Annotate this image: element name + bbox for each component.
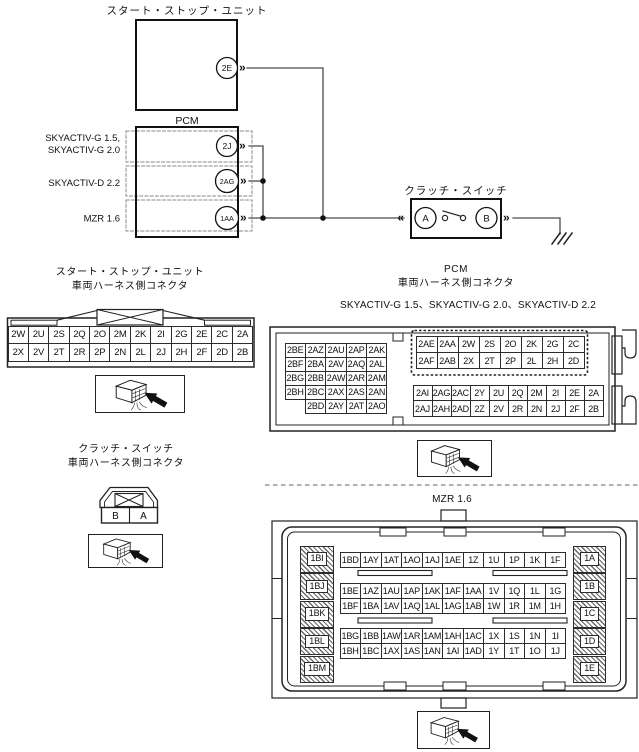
hatch-pin-label: 1B — [580, 580, 599, 594]
pin-1T: 1T — [504, 643, 526, 659]
pin-1AK: 1AK — [422, 583, 444, 599]
hatch-pin-label: 1D — [580, 635, 599, 649]
pin-2AH: 2AH — [432, 400, 452, 417]
pin-2G: 2G — [542, 336, 564, 353]
mzr-left-end-column: 1BI1BJ1BK1BL1BM — [300, 546, 334, 683]
pin-2R: 2R — [69, 343, 90, 362]
pin-row: 2BG2BB2AW2AR2AM — [285, 371, 388, 386]
start-stop-unit-title: スタート・ストップ・ユニット — [107, 5, 268, 17]
pin-1AF: 1AF — [442, 583, 464, 599]
pin-1K: 1K — [524, 552, 546, 568]
pin-2I: 2I — [546, 385, 566, 402]
pin-2I: 2I — [150, 326, 171, 345]
pin-2V: 2V — [28, 343, 49, 362]
pin-1AA: 1AA — [463, 583, 485, 599]
pin-1AJ: 1AJ — [422, 552, 444, 568]
hatch-pin-label: 1BJ — [306, 580, 329, 594]
pin-1AR: 1AR — [401, 628, 423, 644]
pin-1AL: 1AL — [422, 598, 444, 614]
hatch-pin-1BI: 1BI — [300, 546, 334, 573]
pin-1G: 1G — [545, 583, 567, 599]
pin-2AP: 2AP — [346, 343, 367, 358]
pin-2AU: 2AU — [325, 343, 346, 358]
pin-1BA: 1BA — [360, 598, 382, 614]
pin-row: 2AE2AA2W2S2O2K2G2C — [416, 336, 585, 353]
clutch-out-chevron: » — [503, 211, 510, 225]
ground-icon — [552, 233, 572, 244]
pin-1AE: 1AE — [442, 552, 464, 568]
svg-text:»: » — [239, 61, 246, 75]
pin-1AG: 1AG — [442, 598, 464, 614]
pin-1AD: 1AD — [463, 643, 485, 659]
pin-1S: 1S — [504, 628, 526, 644]
hatch-pin-1BK: 1BK — [300, 601, 334, 628]
pin-1R: 1R — [504, 598, 526, 614]
pin-1M: 1M — [524, 598, 546, 614]
connector-view-icon — [98, 377, 182, 410]
pin-2AE: 2AE — [416, 336, 438, 353]
pin-row: 2BF2BA2AV2AQ2AL — [285, 357, 388, 372]
pin-1BG: 1BG — [340, 628, 362, 644]
pin-1AV: 1AV — [381, 598, 403, 614]
pcm-left-pin-block: 2BE2AZ2AU2AP2AK2BF2BA2AV2AQ2AL2BG2BB2AW2… — [285, 343, 388, 414]
variant-label: SKYACTIV-G 1.5, — [45, 133, 120, 144]
pin-2AV: 2AV — [325, 357, 346, 372]
pin-1J: 1J — [545, 643, 567, 659]
pin-2B: 2B — [232, 343, 253, 362]
pin-2AC: 2AC — [451, 385, 471, 402]
pin-2AO: 2AO — [366, 399, 387, 414]
pin-1U: 1U — [483, 552, 505, 568]
pin-1BB: 1BB — [360, 628, 382, 644]
schematic: スタート・ストップ・ユニット PCM SKYACTIV-G 1.5, SKYAC… — [45, 5, 572, 244]
pin-row: 2BD2AY2AT2AO — [285, 399, 388, 414]
pin-2S: 2S — [479, 336, 501, 353]
pin-2E: 2E — [222, 63, 233, 73]
pin-2V: 2V — [489, 400, 509, 417]
pin-1L: 1L — [524, 583, 546, 599]
pin-1N: 1N — [524, 628, 546, 644]
pin-1I: 1I — [545, 628, 567, 644]
pin-row: 1BD1AY1AT1AO1AJ1AE1Z1U1P1K1F — [340, 552, 567, 568]
pin-2D: 2D — [211, 343, 232, 362]
pin-1AS: 1AS — [401, 643, 423, 659]
svg-text:»: » — [240, 174, 247, 188]
pin-2AQ: 2AQ — [346, 357, 367, 372]
pin-2BC: 2BC — [305, 385, 326, 400]
pin-row: 2BE2AZ2AU2AP2AK — [285, 343, 388, 358]
pin-2W: 2W — [8, 326, 29, 345]
pin-2K: 2K — [130, 326, 151, 345]
pin-2M: 2M — [109, 326, 130, 345]
wiring-diagram-page: スタート・ストップ・ユニット PCM SKYACTIV-G 1.5, SKYAC… — [0, 0, 639, 752]
pin-2Q: 2Q — [508, 385, 528, 402]
pin-2C: 2C — [563, 336, 585, 353]
pin-2AG: 2AG — [220, 177, 235, 186]
pin-1F: 1F — [545, 552, 567, 568]
pin-2A: 2A — [232, 326, 253, 345]
pin-2T: 2T — [48, 343, 69, 362]
pin-1V: 1V — [483, 583, 505, 599]
pin-1Y: 1Y — [483, 643, 505, 659]
pin-2AW: 2AW — [325, 371, 346, 386]
pin-2G: 2G — [171, 326, 192, 345]
pin-2BG: 2BG — [285, 371, 306, 386]
mzr-connector-title: MZR 1.6 — [432, 494, 472, 506]
pin-2P: 2P — [500, 352, 522, 369]
variant-label: SKYACTIV-G 2.0 — [48, 145, 120, 156]
hatch-pin-label: 1BI — [307, 552, 328, 566]
start-stop-pin-grid: 2W2U2S2Q2O2M2K2I2G2E2C2A2X2V2T2R2P2N2L2J… — [8, 326, 254, 362]
pin-2AB: 2AB — [437, 352, 459, 369]
connector-view-icon — [419, 713, 487, 746]
pin-1H: 1H — [545, 598, 567, 614]
pin-2E: 2E — [191, 326, 212, 345]
hatch-pin-1E: 1E — [573, 656, 606, 683]
clutch-pin-b: B — [483, 214, 489, 225]
pin-1AB: 1AB — [463, 598, 485, 614]
pin-2F: 2F — [191, 343, 212, 362]
pin-2A: 2A — [584, 385, 604, 402]
pin-2R: 2R — [508, 400, 528, 417]
pin-2X: 2X — [458, 352, 480, 369]
pin-2BH: 2BH — [285, 385, 306, 400]
pin-2Z: 2Z — [470, 400, 490, 417]
pin-2AM: 2AM — [366, 371, 387, 386]
pin-2AI: 2AI — [413, 385, 433, 402]
pin-2AN: 2AN — [366, 385, 387, 400]
hatch-pin-1B: 1B — [573, 573, 606, 600]
pcm-connector-subtitle: SKYACTIV-G 1.5、SKYACTIV-G 2.0、SKYACTIV-D… — [340, 300, 596, 312]
pin-2AG: 2AG — [432, 385, 452, 402]
pin-2F: 2F — [565, 400, 585, 417]
pin-2O: 2O — [89, 326, 110, 345]
mzr-pin-rows-middle: 1BE1AZ1AU1AP1AK1AF1AA1V1Q1L1G1BF1BA1AV1A… — [340, 583, 567, 614]
pin-2Y: 2Y — [470, 385, 490, 402]
hatch-pin-label: 1E — [580, 662, 599, 676]
pin-2T: 2T — [479, 352, 501, 369]
svg-text:»: » — [239, 139, 246, 153]
wires — [247, 68, 560, 234]
clutch-conn-pin-b: B — [112, 511, 119, 522]
connector-view-icon — [90, 536, 160, 565]
pin-2S: 2S — [48, 326, 69, 345]
svg-text:»: » — [240, 211, 247, 225]
pin-2AA: 2AA — [437, 336, 459, 353]
pin-2D: 2D — [563, 352, 585, 369]
pin-row: 2AF2AB2X2T2P2L2H2D — [416, 352, 585, 369]
pcm-connector-title-1: PCM — [444, 264, 468, 276]
pin-1AU: 1AU — [381, 583, 403, 599]
hatch-pin-label: 1BM — [304, 662, 330, 676]
pin-1O: 1O — [524, 643, 546, 659]
pin-1BC: 1BC — [360, 643, 382, 659]
clutch-switch-title: クラッチ・スイッチ — [404, 185, 508, 197]
pin-2AX: 2AX — [325, 385, 346, 400]
pin-1AN: 1AN — [422, 643, 444, 659]
pin-1AM: 1AM — [422, 628, 444, 644]
pin-2J: 2J — [546, 400, 566, 417]
hatch-pin-label: 1BK — [305, 607, 329, 621]
pin-2BE: 2BE — [285, 343, 306, 358]
pin-1AC: 1AC — [463, 628, 485, 644]
pin-row: 1BF1BA1AV1AQ1AL1AG1AB1W1R1M1H — [340, 598, 567, 614]
pin-2AZ: 2AZ — [305, 343, 326, 358]
hatch-pin-1BM: 1BM — [300, 656, 334, 683]
hatch-pin-label: 1BL — [305, 635, 328, 649]
pcm-variant-labels: SKYACTIV-G 1.5, SKYACTIV-G 2.0 SKYACTIV-… — [45, 133, 120, 225]
pin-1Z: 1Z — [463, 552, 485, 568]
pin-2AF: 2AF — [416, 352, 438, 369]
pin-1AA: 1AA — [220, 214, 234, 223]
pin-2U: 2U — [489, 385, 509, 402]
mzr-connector-view-box — [417, 711, 490, 749]
pcm-right-bottom-pin-block: 2AI2AG2AC2Y2U2Q2M2I2E2A2AJ2AH2AD2Z2V2R2N… — [413, 385, 604, 418]
junction-dots — [260, 178, 326, 221]
pin-2BA: 2BA — [305, 357, 326, 372]
pin-2J: 2J — [150, 343, 171, 362]
clutch-connector-shell: B A — [100, 488, 158, 524]
pin-1AY: 1AY — [360, 552, 382, 568]
pin-2BB: 2BB — [305, 371, 326, 386]
ss-connector-view-box — [95, 375, 185, 413]
pin-2J: 2J — [223, 141, 232, 151]
pin-2M: 2M — [527, 385, 547, 402]
connector-view-icon — [419, 442, 489, 474]
clutch-in-chevron: « — [397, 211, 404, 225]
hatch-pin-1C: 1C — [573, 601, 606, 628]
pin-1BF: 1BF — [340, 598, 362, 614]
pin-row: 2BH2BC2AX2AS2AN — [285, 385, 388, 400]
pin-2AR: 2AR — [346, 371, 367, 386]
pin-2AL: 2AL — [366, 357, 387, 372]
hatch-pin-label: 1A — [580, 552, 599, 566]
pin-1Q: 1Q — [504, 583, 526, 599]
pin-2N: 2N — [527, 400, 547, 417]
pin-row: 1BE1AZ1AU1AP1AK1AF1AA1V1Q1L1G — [340, 583, 567, 599]
pin-2H: 2H — [542, 352, 564, 369]
pin-1BH: 1BH — [340, 643, 362, 659]
pcm-title: PCM — [175, 115, 198, 127]
pin-2L: 2L — [521, 352, 543, 369]
pin-2AK: 2AK — [366, 343, 387, 358]
pin-2K: 2K — [521, 336, 543, 353]
pin-row: 1BH1BC1AX1AS1AN1AI1AD1Y1T1O1J — [340, 643, 567, 659]
pin-2H: 2H — [171, 343, 192, 362]
ss-connector-title-2: 車両ハーネス側コネクタ — [72, 281, 188, 293]
pin-2B: 2B — [584, 400, 604, 417]
hatch-pin-1BJ: 1BJ — [300, 573, 334, 600]
pin-1AH: 1AH — [442, 628, 464, 644]
pcm-connector-title-2: 車両ハーネス側コネクタ — [398, 278, 514, 290]
pin-2P: 2P — [89, 343, 110, 362]
mzr-right-end-column: 1A1B1C1D1E — [573, 546, 606, 683]
pin-1AZ: 1AZ — [360, 583, 382, 599]
pin-2AD: 2AD — [451, 400, 471, 417]
variant-label: MZR 1.6 — [84, 214, 120, 225]
clutch-connector-view-box — [88, 534, 163, 568]
pin-1AO: 1AO — [401, 552, 423, 568]
clutch-connector-title-1: クラッチ・スイッチ — [78, 444, 173, 456]
hatch-pin-1A: 1A — [573, 546, 606, 573]
pin-2BF: 2BF — [285, 357, 306, 372]
mzr-pin-rows-bottom: 1BG1BB1AW1AR1AM1AH1AC1X1S1N1I1BH1BC1AX1A… — [340, 628, 567, 659]
pin-row: 2AJ2AH2AD2Z2V2R2N2J2F2B — [413, 400, 604, 417]
pin-2AJ: 2AJ — [413, 400, 433, 417]
pin-1P: 1P — [504, 552, 526, 568]
pin-1BD: 1BD — [340, 552, 362, 568]
mzr-pin-row-top: 1BD1AY1AT1AO1AJ1AE1Z1U1P1K1F — [340, 552, 567, 568]
pin-2AT: 2AT — [346, 399, 367, 414]
pin-1AQ: 1AQ — [401, 598, 423, 614]
ss-connector-title-1: スタート・ストップ・ユニット — [56, 267, 204, 279]
pin-2AY: 2AY — [325, 399, 346, 414]
variant-label: SKYACTIV-D 2.2 — [48, 178, 120, 189]
pin-2AS: 2AS — [346, 385, 367, 400]
pin-1W: 1W — [483, 598, 505, 614]
clutch-pin-a: A — [422, 214, 429, 225]
pin-1BE: 1BE — [340, 583, 362, 599]
pin-2U: 2U — [28, 326, 49, 345]
clutch-connector-title-2: 車両ハーネス側コネクタ — [68, 458, 184, 470]
pin-2Q: 2Q — [69, 326, 90, 345]
pin-row: 1BG1BB1AW1AR1AM1AH1AC1X1S1N1I — [340, 628, 567, 644]
clutch-conn-pin-a: A — [140, 511, 147, 522]
pin-2BD: 2BD — [305, 399, 326, 414]
pin-1X: 1X — [483, 628, 505, 644]
pin-1AI: 1AI — [442, 643, 464, 659]
pin-2O: 2O — [500, 336, 522, 353]
pin-row: 2X2V2T2R2P2N2L2J2H2F2D2B — [8, 343, 254, 362]
pin-1AX: 1AX — [381, 643, 403, 659]
pin-2L: 2L — [130, 343, 151, 362]
pin-2E: 2E — [565, 385, 585, 402]
pin-1AP: 1AP — [401, 583, 423, 599]
pcm-connector-view-box — [417, 440, 492, 477]
pin-row: 2AI2AG2AC2Y2U2Q2M2I2E2A — [413, 385, 604, 402]
pin-1AW: 1AW — [381, 628, 403, 644]
pin-2N: 2N — [109, 343, 130, 362]
pcm-right-top-pin-block: 2AE2AA2W2S2O2K2G2C2AF2AB2X2T2P2L2H2D — [416, 336, 585, 370]
pin-2W: 2W — [458, 336, 480, 353]
pin-2C: 2C — [211, 326, 232, 345]
hatch-pin-1BL: 1BL — [300, 628, 334, 655]
hatch-pin-label: 1C — [580, 607, 599, 621]
pin-1AT: 1AT — [381, 552, 403, 568]
pin-row: 2W2U2S2Q2O2M2K2I2G2E2C2A — [8, 326, 254, 345]
hatch-pin-1D: 1D — [573, 628, 606, 655]
pin-2X: 2X — [8, 343, 29, 362]
